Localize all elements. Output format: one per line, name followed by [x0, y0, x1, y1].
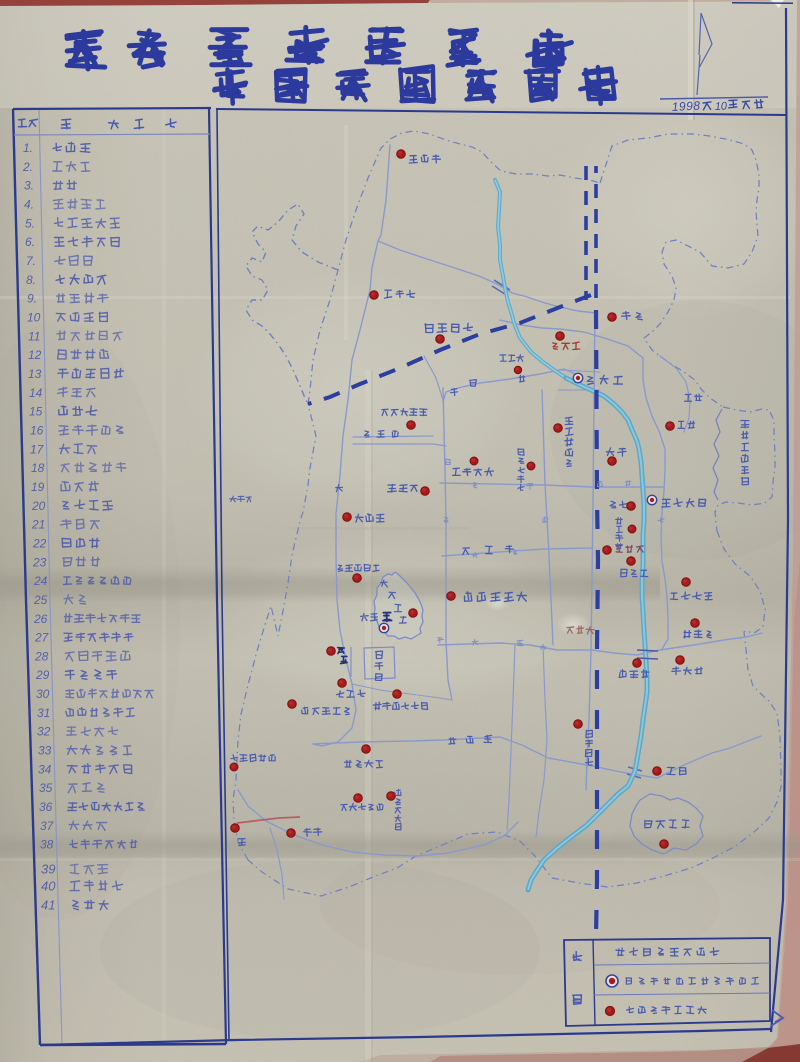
svg-text:25: 25	[33, 593, 48, 607]
svg-text:17: 17	[30, 442, 45, 456]
svg-text:19: 19	[31, 480, 45, 494]
svg-text:24: 24	[33, 574, 48, 588]
svg-text:39: 39	[41, 862, 55, 877]
svg-text:30: 30	[36, 687, 50, 701]
svg-text:3.: 3.	[24, 179, 34, 193]
svg-text:34: 34	[38, 762, 52, 776]
svg-text:32: 32	[37, 725, 51, 739]
svg-text:28: 28	[34, 649, 49, 663]
svg-text:23: 23	[32, 555, 47, 569]
svg-text:8.: 8.	[26, 273, 36, 287]
svg-text:41: 41	[41, 898, 55, 913]
svg-text:15: 15	[29, 405, 43, 419]
svg-text:7.: 7.	[26, 254, 36, 268]
svg-text:11: 11	[28, 329, 40, 343]
svg-text:5.: 5.	[25, 216, 35, 230]
svg-text:16: 16	[30, 423, 44, 437]
svg-text:38: 38	[40, 838, 54, 852]
svg-text:12: 12	[28, 348, 42, 362]
svg-text:27: 27	[34, 631, 50, 645]
svg-text:40: 40	[41, 879, 56, 894]
svg-text:18: 18	[31, 461, 45, 475]
svg-text:26: 26	[33, 612, 48, 626]
svg-text:10: 10	[714, 100, 728, 113]
svg-text:36: 36	[39, 800, 53, 814]
svg-text:9.: 9.	[27, 292, 37, 306]
svg-text:31: 31	[37, 706, 50, 720]
svg-text:1998: 1998	[671, 99, 700, 114]
svg-text:33: 33	[38, 744, 52, 758]
svg-text:20: 20	[31, 499, 46, 513]
svg-text:13: 13	[28, 367, 42, 381]
svg-text:2.: 2.	[22, 160, 33, 174]
svg-text:37: 37	[40, 819, 55, 833]
svg-text:21: 21	[31, 518, 45, 532]
svg-text:22: 22	[32, 536, 47, 550]
svg-text:6.: 6.	[25, 235, 35, 249]
svg-text:10: 10	[27, 311, 41, 325]
svg-text:1.: 1.	[23, 141, 33, 155]
svg-text:14: 14	[29, 386, 43, 400]
svg-text:4.: 4.	[24, 198, 34, 212]
svg-text:29: 29	[35, 668, 50, 682]
svg-text:35: 35	[39, 781, 53, 795]
